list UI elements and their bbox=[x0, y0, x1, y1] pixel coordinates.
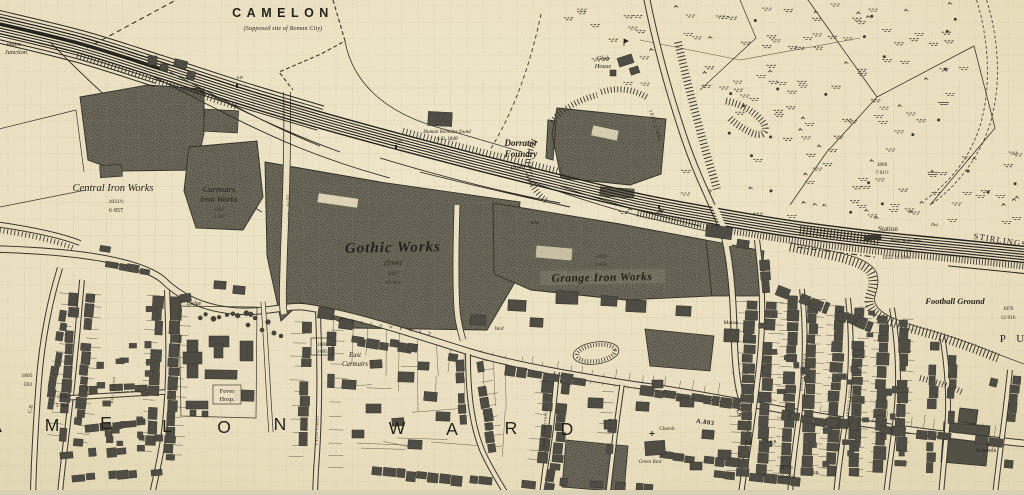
svg-text:Club: Club bbox=[597, 55, 610, 62]
svg-text:M: M bbox=[45, 415, 60, 435]
svg-text:Football Ground: Football Ground bbox=[924, 296, 985, 306]
svg-text:Carmuirs: Carmuirs bbox=[203, 184, 236, 194]
svg-text:A.9: A.9 bbox=[744, 439, 753, 446]
svg-text:(Supposed site of Roman City): (Supposed site of Roman City) bbox=[244, 25, 323, 32]
svg-text:Station: Station bbox=[878, 225, 898, 233]
svg-text:muirs: muirs bbox=[7, 41, 22, 48]
svg-text:12·916: 12·916 bbox=[1001, 315, 1016, 321]
svg-text:S.P.: S.P. bbox=[396, 139, 403, 144]
svg-text:S.P.: S.P. bbox=[906, 247, 912, 252]
svg-text:W.M.: W.M. bbox=[530, 220, 539, 225]
svg-text:House: House bbox=[594, 63, 612, 70]
svg-text:·593: ·593 bbox=[22, 382, 32, 388]
svg-text:East: East bbox=[348, 352, 362, 359]
svg-text:L: L bbox=[162, 416, 172, 436]
svg-text:1806: 1806 bbox=[57, 394, 68, 400]
svg-text:R: R bbox=[505, 418, 518, 438]
svg-text:Fever: Fever bbox=[220, 388, 236, 395]
svg-text:Iron Works: Iron Works bbox=[199, 194, 238, 204]
svg-text:Gothic Works: Gothic Works bbox=[345, 239, 441, 257]
svg-text:Hosp.: Hosp. bbox=[219, 396, 235, 403]
svg-text:Grange Iron Works: Grange Iron Works bbox=[551, 271, 652, 285]
svg-text:A: A bbox=[446, 419, 458, 439]
svg-text:1829: 1829 bbox=[214, 208, 224, 213]
svg-text:1871½: 1871½ bbox=[779, 466, 793, 471]
svg-text:O: O bbox=[217, 417, 231, 437]
svg-text:4·589: 4·589 bbox=[213, 215, 225, 220]
svg-text:Dorrator: Dorrator bbox=[503, 138, 538, 148]
svg-text:D: D bbox=[561, 419, 574, 439]
svg-text:1819: 1819 bbox=[596, 254, 607, 260]
svg-text:3·095: 3·095 bbox=[316, 350, 328, 355]
svg-text:Junction: Junction bbox=[5, 49, 27, 56]
svg-text:W: W bbox=[389, 418, 406, 438]
svg-text:A: A bbox=[0, 416, 2, 436]
svg-text:Green Yard: Green Yard bbox=[639, 460, 662, 465]
svg-text:N: N bbox=[274, 414, 287, 434]
svg-text:6·857: 6·857 bbox=[109, 208, 123, 214]
svg-text:149·80½: 149·80½ bbox=[777, 475, 795, 480]
svg-text:Party. Brgh. Bdy.: Party. Brgh. Bdy. bbox=[889, 238, 922, 243]
svg-text:(Iron): (Iron) bbox=[511, 164, 525, 171]
svg-text:Def.: Def. bbox=[930, 222, 939, 227]
svg-text:S.P.: S.P. bbox=[237, 75, 244, 80]
svg-text:Lodge: Lodge bbox=[186, 301, 202, 307]
svg-text:CAMELON: CAMELON bbox=[232, 6, 334, 20]
svg-text:1831½: 1831½ bbox=[108, 198, 123, 205]
svg-text:Church: Church bbox=[659, 426, 675, 432]
svg-text:1827: 1827 bbox=[388, 271, 399, 277]
svg-text:10·062: 10·062 bbox=[385, 280, 401, 286]
svg-text:A.D. 1848: A.D. 1848 bbox=[435, 135, 458, 142]
svg-text:1805: 1805 bbox=[22, 373, 33, 379]
svg-text:7·61½: 7·61½ bbox=[875, 169, 889, 176]
svg-text:Schools: Schools bbox=[976, 447, 997, 454]
svg-text:1869: 1869 bbox=[877, 162, 888, 168]
svg-text:Manse: Manse bbox=[724, 320, 739, 326]
svg-text:P U: P U bbox=[1000, 333, 1024, 345]
svg-text:4·836: 4·836 bbox=[595, 262, 608, 268]
svg-text:Yard: Yard bbox=[494, 327, 504, 332]
svg-text:E: E bbox=[100, 413, 112, 433]
svg-text:P.R.: P.R. bbox=[813, 470, 820, 475]
svg-text:3·001: 3·001 bbox=[56, 403, 69, 409]
svg-text:(Iron): (Iron) bbox=[384, 258, 402, 267]
svg-text:1933 16·23¾: 1933 16·23¾ bbox=[882, 254, 910, 261]
svg-text:Carmuirs: Carmuirs bbox=[342, 361, 368, 368]
svg-text:Foundry: Foundry bbox=[504, 149, 539, 159]
svg-text:1808: 1808 bbox=[317, 343, 327, 348]
svg-text:1870: 1870 bbox=[1003, 306, 1014, 312]
svg-text:T.C.R.: T.C.R. bbox=[767, 439, 778, 444]
svg-text:Human Remains found: Human Remains found bbox=[422, 128, 471, 135]
svg-text:Central Iron Works: Central Iron Works bbox=[73, 183, 154, 194]
